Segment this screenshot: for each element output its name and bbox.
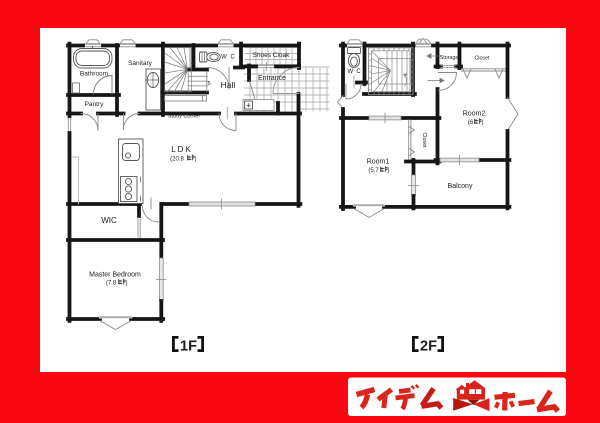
svg-text:Bathroom: Bathroom <box>80 71 108 78</box>
svg-text:): ) <box>126 281 128 287</box>
svg-text:Hall: Hall <box>221 80 236 90</box>
svg-text:Master Bedroom: Master Bedroom <box>89 272 141 279</box>
svg-text:): ) <box>482 120 484 126</box>
svg-text:Sanitary: Sanitary <box>128 60 153 67</box>
svg-text:W C: W C <box>221 55 236 61</box>
svg-text:LDK: LDK <box>171 145 193 154</box>
svg-text:(5.7: (5.7 <box>368 168 379 174</box>
svg-text:WIC: WIC <box>101 216 117 225</box>
svg-text:(7.8: (7.8 <box>106 281 117 287</box>
svg-text:Room2: Room2 <box>463 111 486 118</box>
svg-text:Closet: Closet <box>474 56 490 62</box>
svg-text:Entrance: Entrance <box>258 75 286 82</box>
svg-text:Room1: Room1 <box>367 159 390 166</box>
svg-text:(20.8: (20.8 <box>170 157 184 163</box>
svg-text:Shoes Cloak: Shoes Cloak <box>253 52 291 59</box>
svg-text:Study Corner: Study Corner <box>168 114 201 120</box>
svg-text:Pantry: Pantry <box>85 101 105 108</box>
svg-text:Closet: Closet <box>421 132 427 148</box>
svg-text:Balcony: Balcony <box>448 183 473 190</box>
svg-text:5: 5 <box>207 81 210 87</box>
svg-text:W C: W C <box>347 69 361 75</box>
svg-text:Storage: Storage <box>440 55 459 61</box>
svg-text:): ) <box>388 168 390 174</box>
svg-text:(6: (6 <box>468 120 474 126</box>
svg-text:2F: 2F <box>420 339 437 355</box>
svg-text:): ) <box>195 157 197 163</box>
svg-text:1F: 1F <box>180 339 197 355</box>
